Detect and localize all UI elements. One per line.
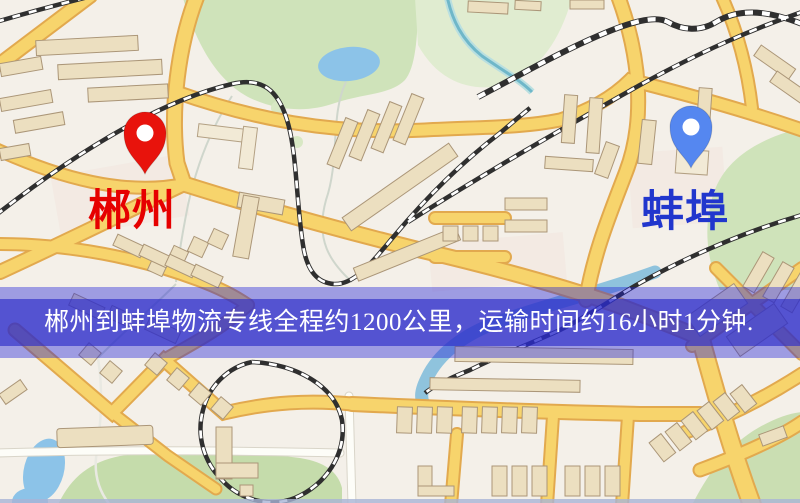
map-background [0, 0, 800, 503]
route-info-banner: 郴州到蚌埠物流专线全程约1200公里，运输时间约16小时1分钟. [0, 287, 800, 358]
origin-city-label: 郴州 [88, 176, 176, 238]
route-info-band: 郴州到蚌埠物流专线全程约1200公里，运输时间约16小时1分钟. [0, 299, 800, 346]
map-screenshot: 郴州到蚌埠物流专线全程约1200公里，运输时间约16小时1分钟. 郴州 蚌埠 [0, 0, 800, 503]
destination-city-label: 蚌埠 [641, 177, 729, 239]
route-info-text: 郴州到蚌埠物流专线全程约1200公里，运输时间约16小时1分钟. [44, 299, 754, 346]
bottom-edge-strip [0, 499, 800, 503]
